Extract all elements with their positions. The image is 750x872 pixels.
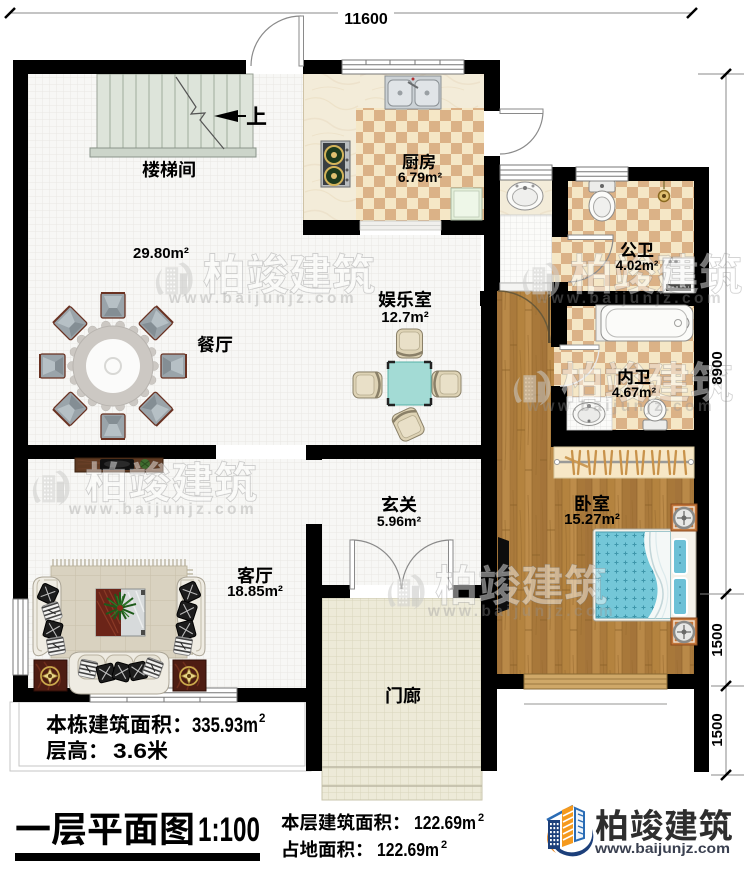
svg-text:1500: 1500: [709, 623, 726, 656]
svg-text:www.baijunjz.com: www.baijunjz.com: [68, 501, 257, 518]
svg-text:1:100: 1:100: [198, 811, 260, 849]
svg-text:8900: 8900: [709, 351, 726, 384]
svg-text:2: 2: [441, 839, 447, 851]
svg-text:www.baijunjz.com: www.baijunjz.com: [168, 290, 357, 307]
svg-text:6.79m²: 6.79m²: [398, 169, 443, 185]
svg-text:5.96m²: 5.96m²: [377, 513, 422, 529]
svg-text:3.6: 3.6: [113, 740, 147, 763]
svg-text:122.69m: 122.69m: [377, 839, 439, 860]
svg-text:www.baijunjz.com: www.baijunjz.com: [427, 603, 616, 620]
svg-text:29.80m²: 29.80m²: [133, 245, 189, 262]
svg-text:1500: 1500: [709, 713, 726, 746]
svg-text:15.27m²: 15.27m²: [564, 511, 620, 528]
svg-text:2: 2: [478, 812, 484, 824]
svg-text:335.93m: 335.93m: [192, 714, 258, 737]
svg-text:4.67m²: 4.67m²: [612, 384, 657, 400]
svg-text:122.69m: 122.69m: [414, 812, 476, 833]
svg-text:www.baijunjz.com: www.baijunjz.com: [526, 398, 715, 415]
svg-text:2: 2: [259, 713, 265, 725]
svg-text:4.02m²: 4.02m²: [616, 258, 659, 273]
svg-text:www.baijunjz.com: www.baijunjz.com: [594, 840, 730, 856]
svg-text:11600: 11600: [344, 11, 388, 28]
svg-text:www.baijunjz.com: www.baijunjz.com: [535, 290, 724, 307]
svg-text:12.7m²: 12.7m²: [381, 309, 429, 326]
svg-text:18.85m²: 18.85m²: [227, 583, 283, 600]
